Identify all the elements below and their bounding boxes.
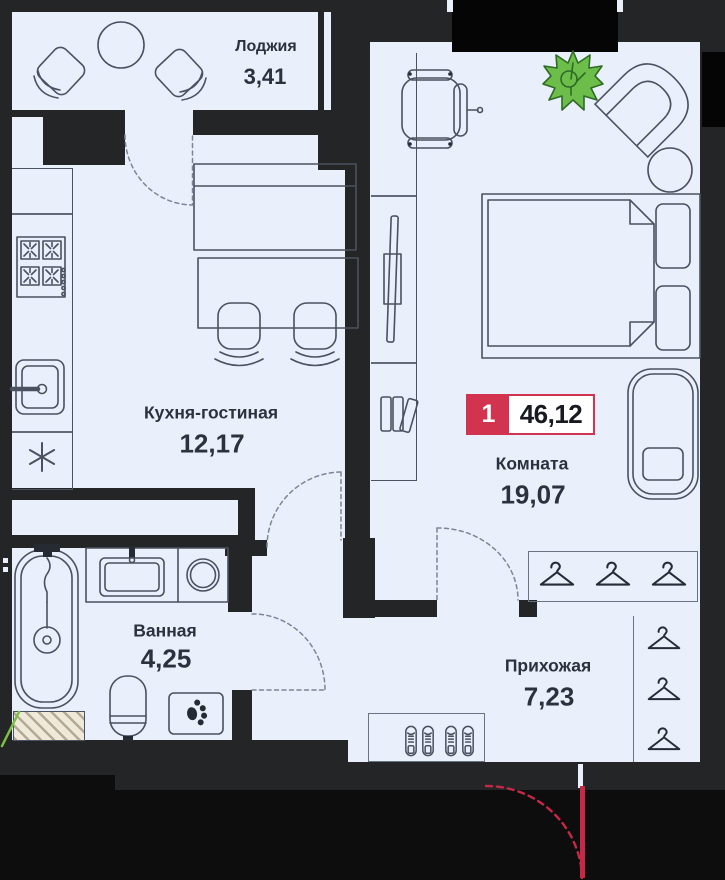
room-area-room: 19,07 <box>500 480 565 511</box>
room-name-bathroom: Ванная <box>133 621 196 642</box>
pipe-mark <box>3 567 8 572</box>
entrance-door-icon <box>478 776 590 880</box>
dining-chair <box>210 299 268 371</box>
bathroom-hatch-strip <box>13 711 85 741</box>
wall <box>318 0 345 170</box>
hanger-icon <box>646 727 682 755</box>
dining-chair <box>286 299 344 371</box>
balcony-mark <box>0 708 22 748</box>
side-table <box>643 143 697 197</box>
wall <box>0 0 345 12</box>
pet-paw-icon <box>167 691 225 736</box>
wall <box>370 600 437 617</box>
hanger-icon <box>594 561 632 591</box>
office-chair <box>396 66 486 154</box>
room-area-bathroom: 4,25 <box>141 644 192 675</box>
pipe-mark <box>3 558 8 563</box>
bathroom-vanity <box>84 544 232 606</box>
bookshelf-icon <box>375 390 419 438</box>
shoe-icon <box>421 725 435 757</box>
sofa <box>192 162 358 252</box>
loggia-glazing <box>324 12 331 110</box>
entrance-door-leaf <box>580 786 585 878</box>
room-name-room: Комната <box>496 454 569 475</box>
badge-room-count: 1 <box>468 396 509 433</box>
wall <box>12 110 43 117</box>
apartment-badge: 1 46,12 <box>466 394 595 435</box>
wall <box>0 12 12 775</box>
shoe-icon <box>444 725 458 757</box>
room-name-hallway: Прихожая <box>505 656 591 677</box>
loggia-chair <box>28 38 94 104</box>
wall <box>232 690 252 740</box>
bathtub-icon <box>12 544 84 714</box>
wall <box>700 42 725 790</box>
window <box>452 0 618 52</box>
shoe-icon <box>461 725 475 757</box>
fridge-snowflake-icon <box>27 442 57 472</box>
room-area-kitchen: 12,17 <box>179 429 244 460</box>
door-swing-icon <box>260 466 348 550</box>
room-name-loggia: Лоджия <box>235 38 296 56</box>
wall <box>43 110 125 165</box>
bed <box>478 190 704 362</box>
room-name-kitchen: Кухня-гостиная <box>144 403 278 424</box>
door-swing-icon <box>118 128 202 212</box>
door-swing-icon <box>430 522 522 604</box>
hanger-icon <box>646 677 682 705</box>
wall <box>193 110 345 135</box>
hanger-icon <box>650 561 688 591</box>
wall <box>115 775 348 790</box>
wall <box>0 740 348 775</box>
room-area-loggia: 3,41 <box>244 64 287 90</box>
wall-joint <box>617 0 623 12</box>
kitchen-sink-icon <box>12 356 70 418</box>
hanger-icon <box>646 626 682 654</box>
stove-burner-icon <box>16 236 68 300</box>
floor-plan: Лоджия 3,41 Кухня-гостиная 12,17 Комната… <box>0 0 725 880</box>
room-area-hallway: 7,23 <box>524 682 575 713</box>
pillow <box>656 286 690 350</box>
pillow <box>656 204 690 268</box>
shoe-icon <box>404 725 418 757</box>
toilet-icon <box>105 672 151 744</box>
door-swing-icon <box>244 606 330 696</box>
loggia-chair <box>146 40 212 106</box>
dresser <box>625 366 701 502</box>
hanger-icon <box>538 561 576 591</box>
tv-monitor-icon <box>379 212 407 346</box>
wall-joint <box>447 0 453 12</box>
window <box>702 52 725 127</box>
badge-total-area: 46,12 <box>509 396 593 433</box>
loggia-table <box>95 19 147 71</box>
